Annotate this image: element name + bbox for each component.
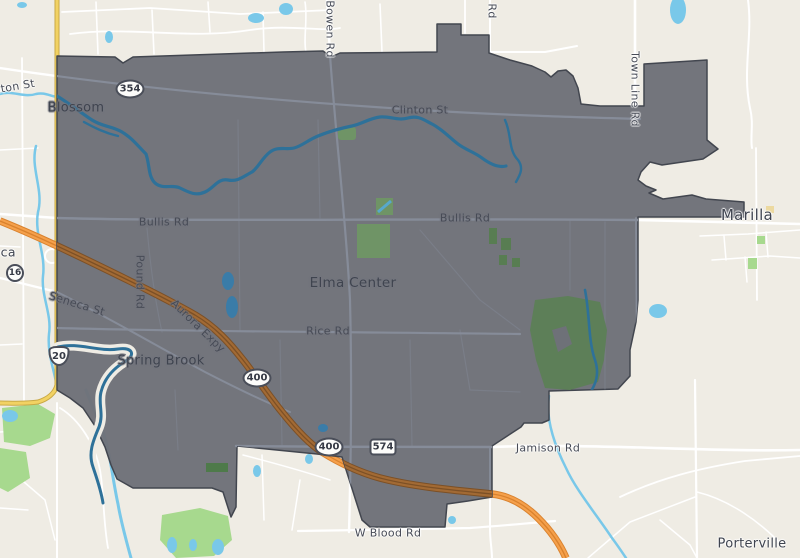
town-label-seneca: Seneca bbox=[0, 245, 16, 260]
route-shield-574-rect: 574 bbox=[370, 439, 397, 456]
road-label-seneca-st: Seneca St bbox=[47, 289, 106, 318]
route-shield-354-oval: 354 bbox=[116, 80, 145, 99]
road-label-w-blood-rd: W Blood Rd bbox=[355, 527, 422, 540]
map-viewport[interactable]: BlossomSenecaSpring BrookElma CenterMari… bbox=[0, 0, 800, 558]
town-label-spring-brook: Spring Brook bbox=[117, 354, 204, 369]
road-label-bullis-rd: Bullis Rd bbox=[440, 212, 490, 225]
town-label-marilla: Marilla bbox=[721, 206, 773, 224]
route-shield-20-us: 20 bbox=[49, 346, 70, 366]
road-label-aurora-expy: Aurora Expy bbox=[168, 297, 228, 355]
town-label-porterville: Porterville bbox=[718, 537, 787, 552]
town-label-blossom: Blossom bbox=[48, 101, 105, 116]
route-shield-400-oval: 400 bbox=[315, 438, 344, 457]
town-label-elma-center: Elma Center bbox=[310, 275, 397, 291]
road-label-pound-rd: Pound Rd bbox=[134, 255, 147, 309]
road-label-clinton-st: Clinton St bbox=[0, 77, 36, 100]
road-label-rice-rd: Rice Rd bbox=[306, 325, 350, 338]
route-shield-400-oval: 400 bbox=[243, 369, 272, 388]
road-label-town-line-rd: Town Line Rd bbox=[629, 51, 642, 127]
road-label-clinton-st: Clinton St bbox=[392, 104, 449, 117]
road-label-rd: Rd bbox=[486, 3, 499, 18]
road-label-bullis-rd: Bullis Rd bbox=[139, 216, 189, 229]
route-shield-16-circle: 16 bbox=[6, 264, 24, 282]
road-label-bowen-rd: Bowen Rd bbox=[324, 0, 337, 58]
label-layer: BlossomSenecaSpring BrookElma CenterMari… bbox=[0, 0, 800, 558]
road-label-jamison-rd: Jamison Rd bbox=[516, 442, 580, 455]
